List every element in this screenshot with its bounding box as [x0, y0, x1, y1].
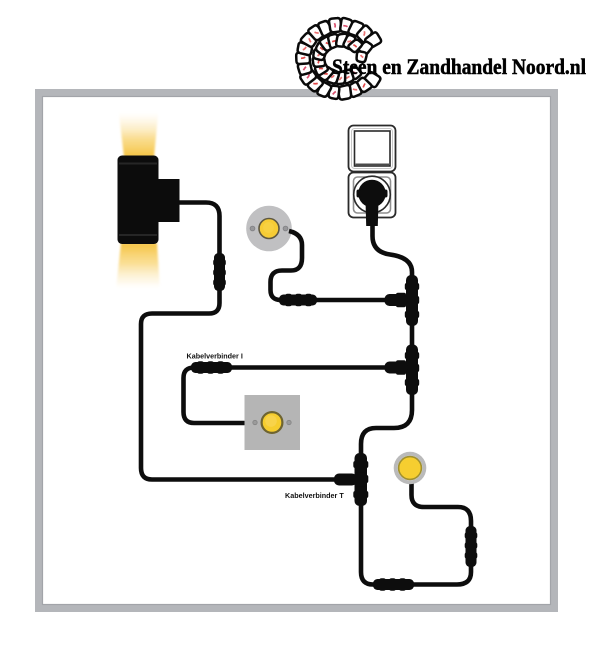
svg-text:Kabelverbinder T: Kabelverbinder T: [285, 491, 344, 500]
svg-text:Kabelverbinder I: Kabelverbinder I: [187, 352, 243, 361]
svg-text:Steen en Zandhandel Noord.nl: Steen en Zandhandel Noord.nl: [332, 54, 586, 79]
